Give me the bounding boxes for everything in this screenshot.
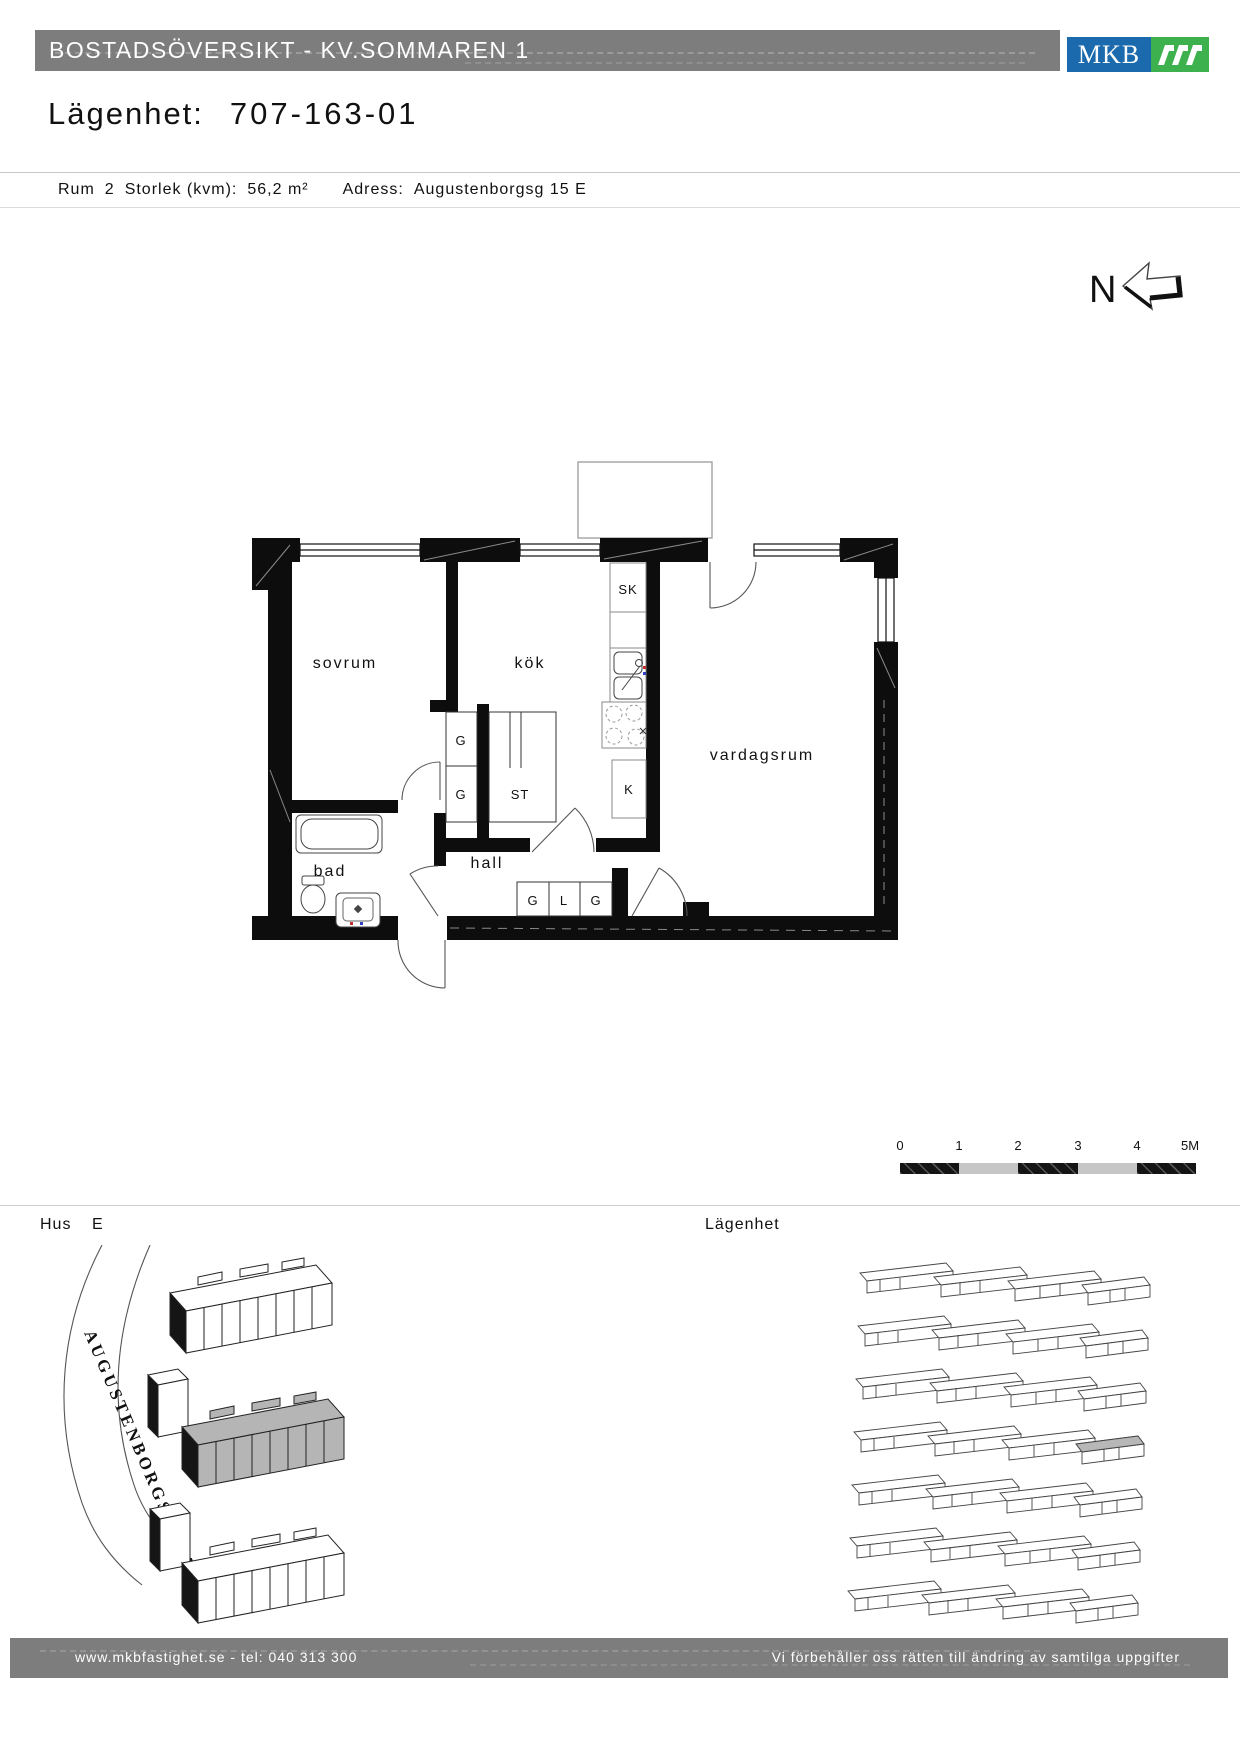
closet-st-label: ST [511,787,530,802]
bedroom-label: sovrum [313,655,377,672]
bathroom-sink [336,893,380,927]
kitchen-label: kök [515,655,546,672]
closets [446,712,612,916]
toilet [301,876,325,913]
livingroom-door [632,868,687,916]
windows [300,544,894,642]
rooms-label: Rum [58,181,95,199]
bathroom-door [410,866,438,916]
mkb-logo-text: MKB [1067,37,1151,72]
hall-closet-g2-label: G [590,893,601,908]
divider [0,207,1240,208]
apartment-title: Lägenhet: 707-163-01 [48,96,419,132]
tap-cold [643,672,646,675]
site-building [170,1258,332,1353]
mkb-logo: MKB [1067,37,1209,72]
north-label: N [1089,269,1116,311]
room-labels: sovrum kök vardagsrum bad hall [313,655,814,880]
site-map-floors [745,1245,1240,1645]
divider [0,1205,1240,1206]
hall-closet-l-label: L [560,893,568,908]
address-label: Adress: [343,181,404,199]
tap-hot [643,666,646,669]
site-building-highlighted [182,1392,344,1487]
scale-tick: 1 [955,1138,962,1153]
document-title: BOSTADSÖVERSIKT - KV.SOMMAREN 1 [49,37,530,64]
floor-slab [850,1528,1140,1570]
footer-contact: www.mkbfastighet.se - tel: 040 313 300 [75,1649,357,1665]
size-value: 56,2 m² [247,181,308,199]
scale-tick: 0 [896,1138,903,1153]
mkb-chevrons-icon [1151,37,1209,72]
north-arrow-icon [1123,263,1182,309]
divider [0,172,1240,173]
bathtub [296,815,382,853]
entrance-door [398,940,445,988]
floor-slab [860,1263,1150,1305]
scan-dash-artifact [465,62,1025,64]
scale-tick: 2 [1014,1138,1021,1153]
house-label: Hus [40,1216,71,1234]
scan-artifacts [256,541,895,931]
floor-slab [852,1475,1142,1517]
apartment-number: 707-163-01 [230,96,419,132]
closet-g1-label: G [455,733,466,748]
header-bar: BOSTADSÖVERSIKT - KV.SOMMAREN 1 [35,30,1060,71]
scale-tick: 3 [1074,1138,1081,1153]
balcony-door [710,562,756,608]
apartment-label: Lägenhet: [48,96,204,132]
balcony-outline [578,462,712,538]
scale-tick: 5M [1181,1138,1199,1153]
house-value: E [92,1216,104,1234]
bathroom-label: bad [314,863,347,880]
floor-slab [856,1369,1146,1411]
address-value: Augustenborgsg 15 E [414,181,587,199]
stove [602,702,646,748]
hall-label: hall [471,855,504,872]
hall-closet-g1-label: G [527,893,538,908]
info-row: Rum 2 Storlek (kvm): 56,2 m² Adress: Aug… [58,181,597,199]
rooms-value: 2 [105,181,115,199]
scale-bar-segments [900,1163,1196,1174]
floor-slab [848,1581,1138,1623]
floor-plan: sovrum kök vardagsrum bad hall SK G G ST… [245,420,905,1020]
walls [252,538,898,940]
footer-disclaimer: Vi förbehåller oss rätten till ändring a… [772,1649,1180,1665]
scale-bar: 0 1 2 3 4 5M [890,1138,1202,1178]
kitchen-counter [602,563,646,818]
closet-sk-label: SK [618,582,637,597]
site-apartment-label: Lägenhet [705,1216,780,1234]
size-label: Storlek (kvm): [125,181,238,199]
livingroom-label: vardagsrum [710,747,814,764]
north-compass: N [1075,250,1205,320]
scale-tick: 4 [1133,1138,1140,1153]
site-building [182,1528,344,1623]
site-building-connector [150,1503,190,1571]
closet-k-label: K [624,782,634,797]
footer-bar: www.mkbfastighet.se - tel: 040 313 300 V… [10,1638,1228,1678]
site-map-house: AUGUSTENBORGSGATAN [30,1245,400,1665]
bedroom-door [402,762,440,800]
floor-slab [858,1316,1148,1358]
closet-g2-label: G [455,787,466,802]
